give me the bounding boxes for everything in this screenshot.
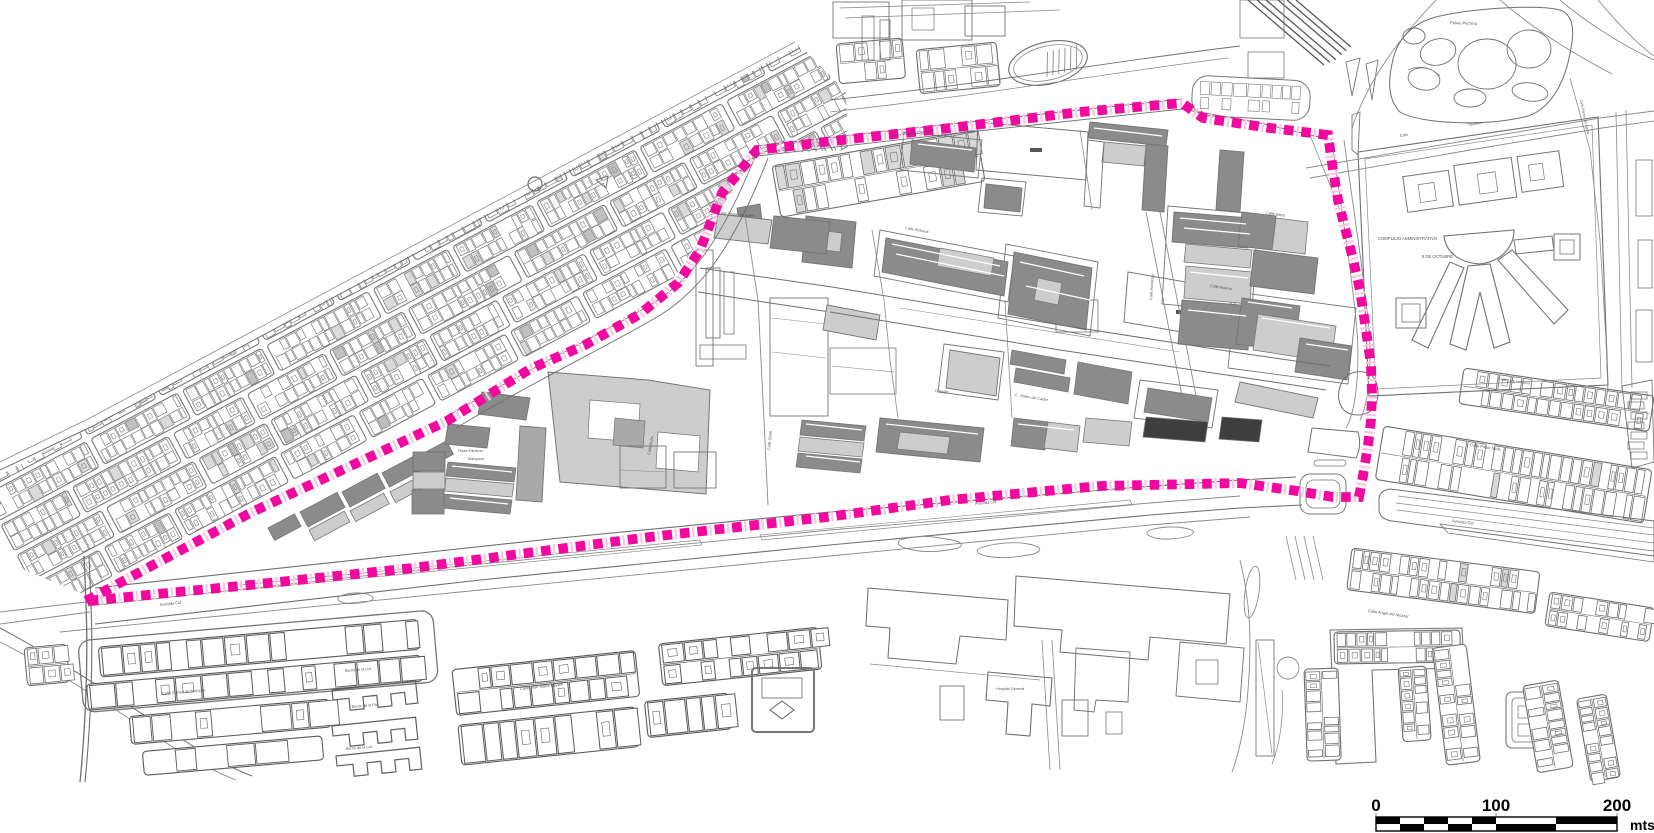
- svg-text:Marquina: Marquina: [468, 457, 485, 461]
- svg-text:100: 100: [1482, 796, 1510, 815]
- svg-text:200: 200: [1603, 796, 1631, 815]
- svg-text:Hospital General: Hospital General: [996, 687, 1024, 691]
- svg-text:COMPLEJO ADMINISTRATIVO: COMPLEJO ADMINISTRATIVO: [1378, 236, 1438, 241]
- svg-text:9 DE OCTUBRE: 9 DE OCTUBRE: [1422, 254, 1453, 259]
- svg-text:Paseo Pechina: Paseo Pechina: [1450, 20, 1478, 26]
- svg-text:0: 0: [1371, 796, 1380, 815]
- svg-text:mts: mts: [1630, 817, 1654, 833]
- svg-text:Plaza Eduardo: Plaza Eduardo: [458, 449, 483, 453]
